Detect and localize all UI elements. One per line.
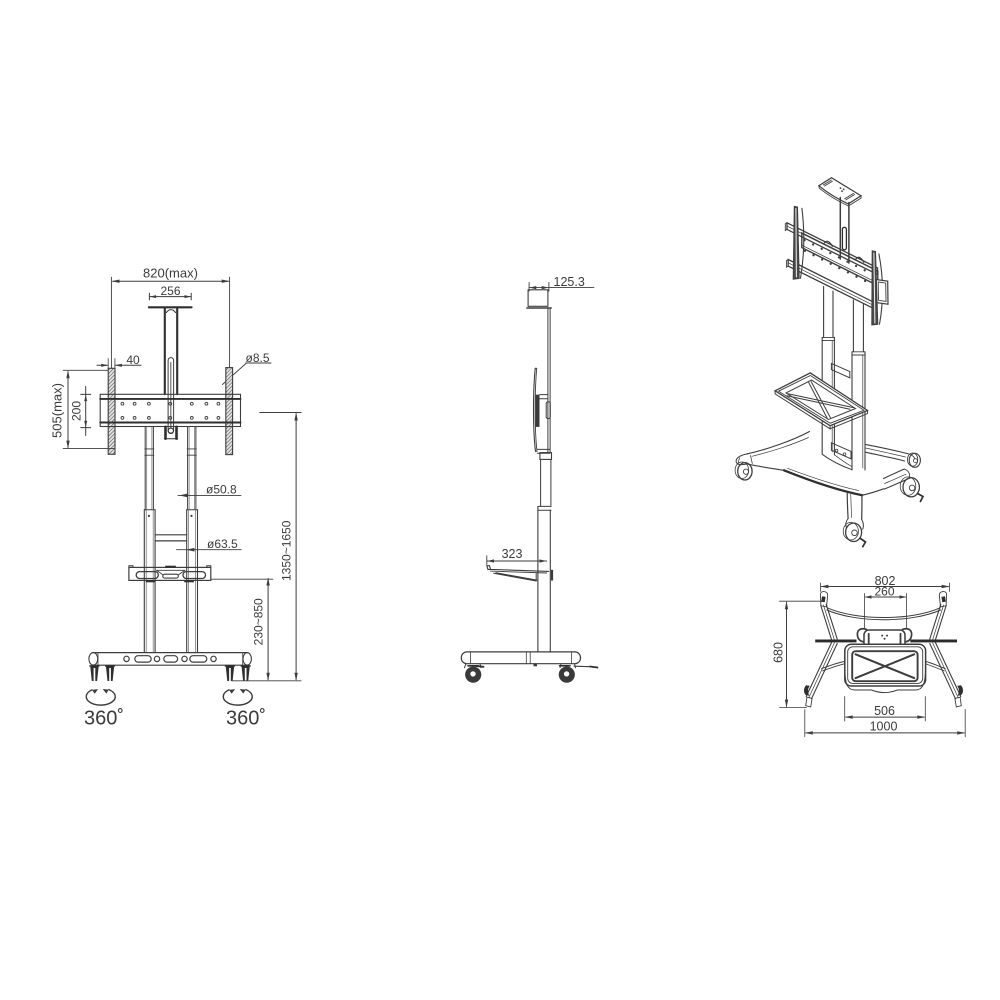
svg-text:820(max): 820(max) <box>143 266 198 281</box>
svg-text:1350~1650: 1350~1650 <box>280 520 294 581</box>
svg-text:ø63.5: ø63.5 <box>207 537 238 551</box>
svg-text:256: 256 <box>160 284 180 298</box>
svg-text:260: 260 <box>874 584 894 598</box>
svg-text:505(max): 505(max) <box>50 383 65 438</box>
svg-text:1000: 1000 <box>870 720 898 734</box>
svg-text:125.3: 125.3 <box>554 275 585 289</box>
svg-text:360˚: 360˚ <box>84 708 124 730</box>
svg-text:323: 323 <box>502 547 523 561</box>
svg-text:ø50.8: ø50.8 <box>206 483 237 497</box>
svg-text:680: 680 <box>772 642 786 663</box>
svg-text:200: 200 <box>70 401 84 421</box>
svg-text:230~850: 230~850 <box>251 598 265 645</box>
svg-text:360˚: 360˚ <box>226 708 266 730</box>
svg-text:506: 506 <box>874 704 895 718</box>
